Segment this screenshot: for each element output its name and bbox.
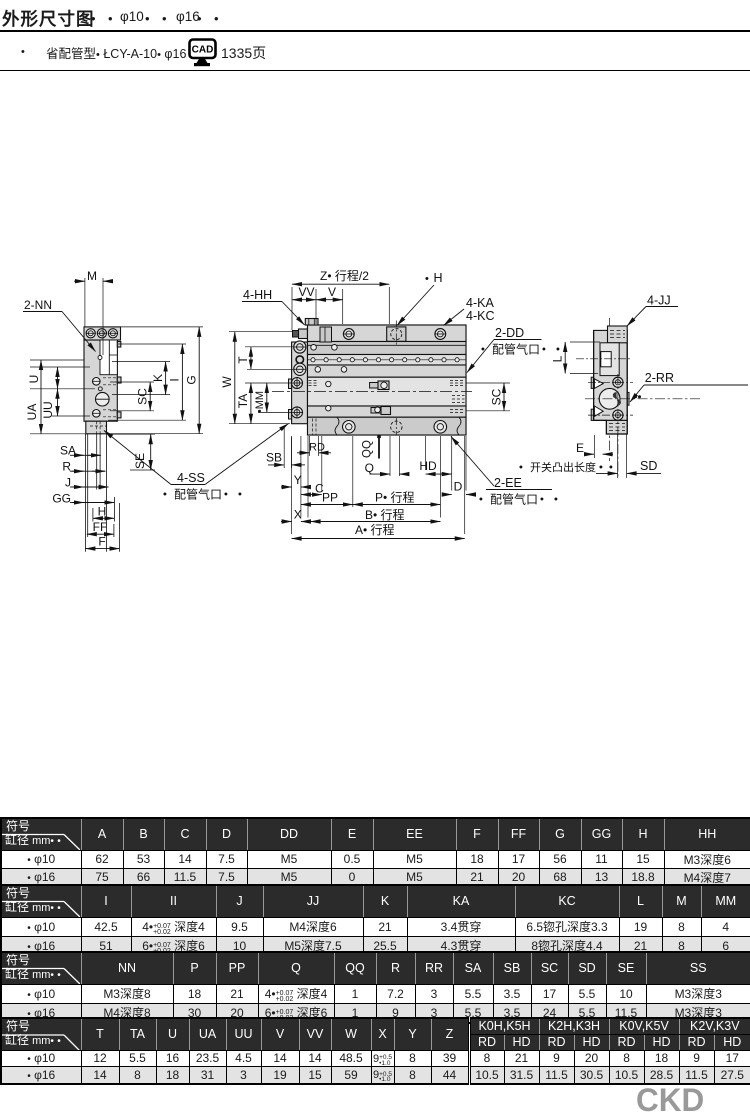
svg-text:F: F	[98, 535, 105, 549]
svg-text:A• 行程: A• 行程	[355, 522, 395, 537]
svg-text:•: •	[519, 462, 523, 474]
svg-text:SB: SB	[266, 451, 282, 465]
svg-text:•: •	[609, 462, 613, 474]
svg-text:Y: Y	[294, 473, 302, 487]
svg-text:G: G	[185, 375, 199, 384]
svg-text:CAD: CAD	[192, 45, 214, 56]
svg-text:RD: RD	[309, 442, 325, 454]
svg-text:•: •	[540, 494, 544, 506]
svg-text:D: D	[454, 480, 463, 494]
svg-text:•: •	[542, 344, 546, 356]
svg-text:•: •	[238, 489, 242, 501]
svg-text:P• 行程: P• 行程	[375, 490, 415, 505]
svg-text:X: X	[294, 508, 302, 522]
svg-text:HD: HD	[419, 459, 437, 473]
svg-text:开关凸出长度: 开关凸出长度	[530, 460, 596, 474]
svg-text:B• 行程: B• 行程	[365, 507, 405, 522]
svg-text:•MM: •MM	[254, 391, 266, 413]
svg-text:FF: FF	[93, 520, 108, 534]
svg-text:•: •	[479, 494, 483, 506]
svg-text:TA: TA	[236, 394, 250, 408]
svg-text:4-KC: 4-KC	[466, 309, 494, 323]
svg-text:Z• 行程/2: Z• 行程/2	[320, 268, 369, 283]
svg-text:V: V	[328, 285, 336, 299]
svg-text:L: L	[551, 355, 565, 362]
svg-text:配管气口: 配管气口	[490, 492, 538, 507]
svg-text:K: K	[151, 374, 165, 382]
svg-text:UU: UU	[41, 401, 55, 418]
svg-text:I: I	[168, 378, 182, 381]
svg-text:2-RR: 2-RR	[645, 371, 674, 385]
svg-text:2-DD: 2-DD	[495, 326, 524, 340]
svg-text:4-HH: 4-HH	[243, 288, 272, 302]
svg-text:SD: SD	[640, 459, 657, 473]
svg-text:R: R	[62, 460, 71, 474]
svg-text:H: H	[434, 271, 443, 285]
svg-text:U: U	[27, 375, 41, 384]
svg-text:配管气口: 配管气口	[174, 487, 222, 502]
svg-text:•: •	[425, 273, 429, 285]
svg-text:UA: UA	[25, 404, 39, 421]
svg-text:SC: SC	[490, 388, 504, 405]
svg-text:•: •	[554, 494, 558, 506]
svg-text:E: E	[576, 441, 584, 455]
svg-text:•: •	[224, 489, 228, 501]
svg-text:2-NN: 2-NN	[24, 298, 52, 312]
svg-text:•: •	[556, 344, 560, 356]
svg-text:M: M	[87, 269, 97, 283]
svg-text:VV: VV	[299, 285, 315, 299]
svg-text:4-KA: 4-KA	[466, 296, 494, 310]
svg-text:4-JJ: 4-JJ	[647, 294, 671, 308]
svg-text:2-EE: 2-EE	[494, 476, 522, 490]
svg-text:GG: GG	[52, 491, 71, 505]
svg-text:•: •	[599, 462, 603, 474]
svg-text:QQ: QQ	[362, 440, 374, 458]
svg-text:Q: Q	[365, 461, 374, 475]
svg-text:•: •	[163, 489, 167, 501]
svg-text:H: H	[98, 505, 107, 519]
svg-text:T: T	[236, 356, 250, 364]
svg-text:SC: SC	[136, 388, 150, 405]
svg-text:W: W	[220, 376, 234, 388]
svg-text:配管气口: 配管气口	[492, 342, 540, 357]
svg-text:•: •	[481, 344, 485, 356]
svg-text:4-SS: 4-SS	[177, 471, 205, 485]
svg-text:PP: PP	[322, 491, 338, 505]
